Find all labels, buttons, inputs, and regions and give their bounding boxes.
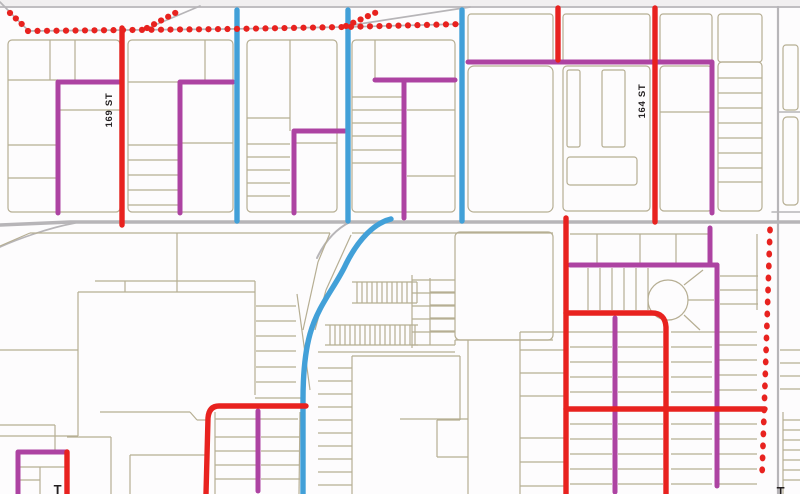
red-dotted-route-dot (167, 26, 173, 32)
red-dotted-route-dot (25, 28, 31, 34)
red-dotted-route-dot (395, 23, 401, 29)
red-dotted-route-dot (329, 24, 335, 30)
red-dotted-route-dot (120, 27, 126, 33)
red-dotted-route-dot (196, 26, 202, 32)
red-dotted-route-dot (766, 262, 772, 269)
red-dotted-route-dot (766, 250, 772, 257)
red-dotted-route-dot (760, 430, 766, 437)
red-dotted-route-dot (764, 322, 770, 329)
red-dotted-route-dot (760, 442, 766, 449)
street-label: T (777, 484, 786, 494)
map-svg[interactable]: 169 ST164 STTT (0, 0, 800, 494)
red-dotted-route-dot (766, 274, 772, 281)
street-label: 169 ST (104, 93, 115, 128)
red-dotted-route-dot (91, 27, 97, 33)
red-dotted-route-dot (215, 26, 221, 32)
red-dotted-route-dot (763, 358, 769, 365)
red-dotted-route-dot (234, 26, 240, 32)
red-dotted-route-dot (253, 25, 259, 31)
red-dotted-route-dot (367, 23, 373, 29)
red-dotted-route-dot (452, 21, 458, 27)
red-dotted-route-dot (158, 17, 164, 23)
red-dotted-route-dot (763, 346, 769, 353)
red-dotted-route-dot (386, 23, 392, 29)
street-label: 164 ST (637, 84, 648, 119)
red-dotted-route-dot (767, 227, 773, 234)
red-dotted-route-dot (765, 298, 771, 305)
red-dotted-route-dot (765, 286, 771, 293)
red-dotted-route-dot (44, 28, 50, 34)
red-dotted-route-dot (53, 28, 59, 34)
red-dotted-route-dot (372, 10, 378, 16)
red-dotted-route-dot (82, 27, 88, 33)
red-dotted-route-dot (300, 25, 306, 31)
red-dotted-route-dot (7, 10, 13, 16)
red-dotted-route-dot (151, 21, 157, 27)
red-dotted-route-dot (350, 20, 356, 26)
red-dotted-route-dot (177, 26, 183, 32)
red-dotted-route-dot (761, 418, 767, 425)
red-dotted-route-dot (243, 26, 249, 32)
street-label: T (54, 482, 63, 494)
red-dotted-route-dot (759, 466, 765, 473)
red-dotted-route-dot (414, 22, 420, 28)
red-dotted-route-dot (762, 394, 768, 401)
red-dotted-route-dot (205, 26, 211, 32)
red-dotted-route-dot (319, 24, 325, 30)
red-dotted-route-dot (376, 23, 382, 29)
red-dotted-route-dot (186, 26, 192, 32)
red-dotted-route-dot (224, 26, 230, 32)
red-dotted-route-dot (443, 21, 449, 27)
red-dotted-route-dot (34, 28, 40, 34)
red-dotted-route-dot (764, 310, 770, 317)
red-dotted-route-dot (291, 25, 297, 31)
red-dotted-route-dot (761, 406, 767, 413)
red-dotted-route-dot (365, 13, 371, 19)
red-dotted-route-dot (357, 24, 363, 30)
red-dotted-route-dot (281, 25, 287, 31)
red-dotted-route-dot (272, 25, 278, 31)
red-dotted-route-dot (158, 27, 164, 33)
red-dotted-route-dot (172, 10, 178, 16)
red-dotted-route-dot (343, 23, 349, 29)
red-dotted-route-dot (110, 27, 116, 33)
red-dotted-route-dot (764, 334, 770, 341)
red-dotted-route-dot (760, 454, 766, 461)
red-dotted-route-dot (129, 27, 135, 33)
red-dotted-route-dot (72, 27, 78, 33)
red-dotted-route-dot (165, 14, 171, 20)
red-dotted-route-dot (357, 16, 363, 22)
red-dotted-route-dot (424, 22, 430, 28)
red-dotted-route-dot (13, 15, 19, 21)
red-dotted-route-dot (144, 25, 150, 31)
red-dotted-route-dot (762, 382, 768, 389)
map-viewport[interactable]: 169 ST164 STTT (0, 0, 800, 494)
red-dotted-route-dot (433, 22, 439, 28)
red-dotted-route-dot (767, 238, 773, 245)
red-dotted-route-dot (101, 27, 107, 33)
red-dotted-route-dot (262, 25, 268, 31)
red-dotted-route-dot (63, 28, 69, 34)
red-dotted-route-dot (310, 24, 316, 30)
map-top-margin (0, 0, 800, 6)
red-dotted-route-dot (762, 370, 768, 377)
red-dotted-route-dot (19, 21, 25, 27)
red-dotted-route-dot (405, 22, 411, 28)
